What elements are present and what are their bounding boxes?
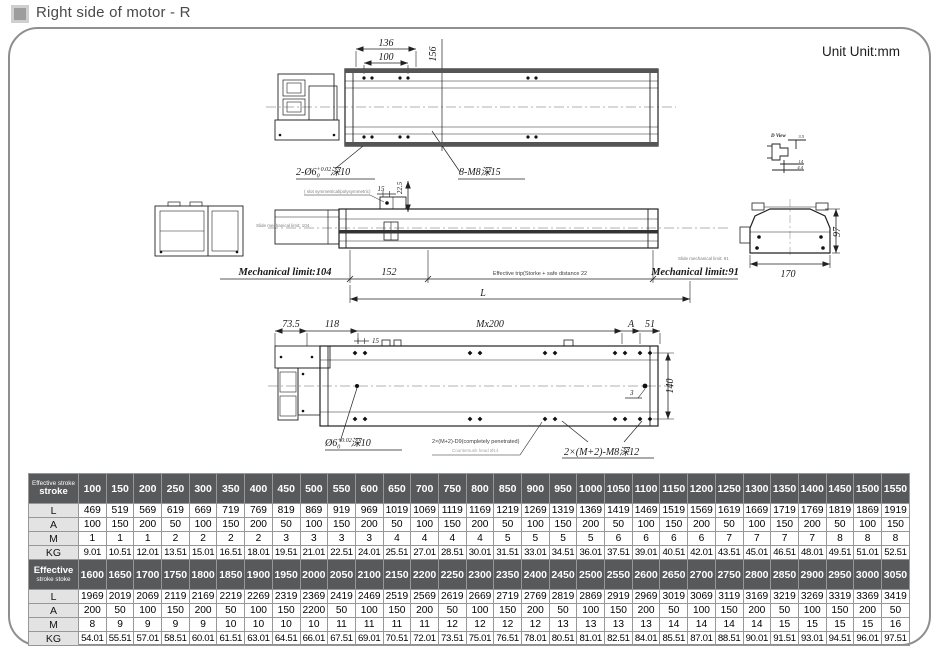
table-cell: 30.01 — [466, 546, 494, 560]
table-cell: 50 — [826, 518, 854, 532]
table-cell: 12 — [466, 618, 494, 632]
table-cell: 50 — [715, 518, 743, 532]
table-cell: 11 — [355, 618, 383, 632]
table-cell: 150 — [217, 518, 245, 532]
table-row-m: M111222233334444555566667777888 — [29, 532, 910, 546]
table-cell: 19.51 — [272, 546, 300, 560]
stroke-value-header: 2200 — [411, 560, 439, 590]
table-cell: 76.51 — [494, 632, 522, 646]
d-view-detail: D View 3.5 14 4.4 — [767, 134, 806, 173]
table-cell: 1869 — [854, 504, 882, 518]
table-cell: 85.51 — [660, 632, 688, 646]
table-cell: 100 — [466, 604, 494, 618]
mechanical-limit-right-label: Mechanical limit:91 — [650, 267, 739, 278]
table-cell: 78.01 — [522, 632, 550, 646]
stroke-value-header: 2100 — [355, 560, 383, 590]
table-cell: 150 — [660, 518, 688, 532]
table-cell: 1019 — [383, 504, 411, 518]
table-cell: 8 — [854, 532, 882, 546]
stroke-value-header: 1700 — [134, 560, 162, 590]
table-cell: 97.51 — [881, 632, 909, 646]
table-cell: 50 — [217, 604, 245, 618]
table-cell: 150 — [771, 518, 799, 532]
stroke-table-2: Effectivestroke stoke1600165017001750180… — [28, 559, 910, 646]
d-view-dim1: 3.5 — [798, 134, 804, 139]
dim-136-label: 136 — [379, 38, 394, 49]
table-cell: 40.51 — [660, 546, 688, 560]
stroke-value-header: 1250 — [715, 474, 743, 504]
table-cell: 100 — [798, 604, 826, 618]
table-cell: 1819 — [826, 504, 854, 518]
dim-15-offset-label: 15 — [372, 337, 380, 345]
table-cell: 3 — [328, 532, 356, 546]
table-cell: 6 — [660, 532, 688, 546]
table-cell: 93.01 — [798, 632, 826, 646]
stroke-value-header: 1600 — [79, 560, 107, 590]
table-cell: 64.51 — [272, 632, 300, 646]
table-cell: 2 — [162, 532, 190, 546]
dim-mx200-label: Mx200 — [475, 319, 504, 330]
table-cell: 3019 — [660, 590, 688, 604]
table-cell: 569 — [134, 504, 162, 518]
table-cell: 100 — [522, 518, 550, 532]
table-cell: 50 — [328, 604, 356, 618]
stroke-value-header: 2550 — [605, 560, 633, 590]
table-cell: 719 — [217, 504, 245, 518]
table-row-m: M899991010101011111111121212121313131314… — [29, 618, 910, 632]
table-cell: 869 — [300, 504, 328, 518]
table-cell: 13 — [632, 618, 660, 632]
stroke-value-header: 1800 — [189, 560, 217, 590]
through-hole-label: 2×(M+2)-D9(completely penetrated) — [432, 439, 520, 445]
table-cell: 5 — [577, 532, 605, 546]
table-cell: 2319 — [272, 590, 300, 604]
table-cell: 36.01 — [577, 546, 605, 560]
table-cell: 69.01 — [355, 632, 383, 646]
table-cell: 2619 — [438, 590, 466, 604]
table-cell: 75.01 — [466, 632, 494, 646]
table-cell: 100 — [355, 604, 383, 618]
table-cell: 2 — [217, 532, 245, 546]
stroke-value-header: 3000 — [854, 560, 882, 590]
table-cell: 4 — [383, 532, 411, 546]
stroke-value-header: 2300 — [466, 560, 494, 590]
table-cell: 150 — [605, 604, 633, 618]
stroke-value-header: 1200 — [688, 474, 716, 504]
table-cell: 50 — [106, 604, 134, 618]
stroke-value-header: 1750 — [162, 560, 190, 590]
table-cell: 1669 — [743, 504, 771, 518]
table-cell: 769 — [245, 504, 273, 518]
table-cell: 61.51 — [217, 632, 245, 646]
table-cell: 91.51 — [771, 632, 799, 646]
stroke-value-header: 500 — [300, 474, 328, 504]
row-label: A — [29, 604, 79, 618]
table-cell: 2219 — [217, 590, 245, 604]
table-cell: 150 — [272, 604, 300, 618]
table-cell: 1369 — [577, 504, 605, 518]
technical-drawing: 136 100 156 2-Ø6+0.020深10 8-M8深15 — [28, 36, 912, 468]
dim-73-5-label: 73.5 — [282, 319, 300, 330]
table-cell: 2869 — [577, 590, 605, 604]
table-cell: 24.01 — [355, 546, 383, 560]
stroke-value-header: 1900 — [245, 560, 273, 590]
table-cell: 82.51 — [605, 632, 633, 646]
table-cell: 2269 — [245, 590, 273, 604]
table-cell: 2569 — [411, 590, 439, 604]
table-cell: 94.51 — [826, 632, 854, 646]
table-cell: 3069 — [688, 590, 716, 604]
table-row-a: A200501001502005010015022005010015020050… — [29, 604, 910, 618]
table-cell: 1969 — [79, 590, 107, 604]
table-cell: 200 — [79, 604, 107, 618]
stroke-value-header: 350 — [217, 474, 245, 504]
table-cell: 200 — [245, 518, 273, 532]
table-cell: 819 — [272, 504, 300, 518]
table-cell: 14 — [688, 618, 716, 632]
top-view-drawing: 136 100 156 2-Ø6+0.020深10 8-M8深15 — [266, 38, 676, 180]
table-cell: 49.51 — [826, 546, 854, 560]
stroke-value-header: 400 — [245, 474, 273, 504]
tapped-hole-bottom-label: 2×(M+2)-M8深12 — [564, 446, 639, 458]
stroke-value-header: 450 — [272, 474, 300, 504]
table-cell: 1 — [106, 532, 134, 546]
table-cell: 3169 — [743, 590, 771, 604]
stroke-value-header: 700 — [411, 474, 439, 504]
dim-156-label: 156 — [428, 47, 439, 62]
table-cell: 100 — [300, 518, 328, 532]
table-cell: 50 — [383, 518, 411, 532]
stroke-value-header: 1850 — [217, 560, 245, 590]
table-cell: 87.01 — [688, 632, 716, 646]
table-cell: 200 — [411, 604, 439, 618]
table-cell: 2119 — [162, 590, 190, 604]
stroke-value-header: 2650 — [660, 560, 688, 590]
stroke-value-header: 2250 — [438, 560, 466, 590]
table-cell: 150 — [438, 518, 466, 532]
table-cell: 10 — [300, 618, 328, 632]
table-cell: 200 — [577, 518, 605, 532]
d-view-dim2: 14 — [799, 159, 804, 164]
symmetry-note: ( slot symmetrical/polysymmetric) — [304, 189, 371, 194]
table-cell: 15.01 — [189, 546, 217, 560]
stroke-value-header: 650 — [383, 474, 411, 504]
table-cell: 150 — [715, 604, 743, 618]
stroke-value-header: 2950 — [826, 560, 854, 590]
table-cell: 58.51 — [162, 632, 190, 646]
row-label: KG — [29, 632, 79, 646]
stroke-value-header: 150 — [106, 474, 134, 504]
slide-limit-right-note: Slide mechanical limit: 91 — [678, 256, 729, 261]
stroke-value-header: 2500 — [577, 560, 605, 590]
table-cell: 96.01 — [854, 632, 882, 646]
dim-100-label: 100 — [379, 52, 394, 63]
table-cell: 2719 — [494, 590, 522, 604]
stroke-value-header: 2850 — [771, 560, 799, 590]
table-cell: 1919 — [881, 504, 909, 518]
table-cell: 2669 — [466, 590, 494, 604]
table-cell: 31.51 — [494, 546, 522, 560]
table-cell: 5 — [549, 532, 577, 546]
table-cell: 39.01 — [632, 546, 660, 560]
table-cell: 919 — [328, 504, 356, 518]
table-cell: 1169 — [466, 504, 494, 518]
stroke-value-header: 1300 — [743, 474, 771, 504]
table-cell: 50 — [605, 518, 633, 532]
table-cell: 2519 — [383, 590, 411, 604]
stroke-value-header: 2750 — [715, 560, 743, 590]
table-cell: 6 — [632, 532, 660, 546]
table-cell: 2200 — [300, 604, 328, 618]
dim-140-label: 140 — [665, 379, 676, 394]
table-cell: 200 — [743, 604, 771, 618]
dowel-hole-label: 2-Ø6+0.020深10 — [296, 166, 350, 180]
table-cell: 6 — [688, 532, 716, 546]
table-cell: 100 — [688, 604, 716, 618]
table-cell: 50 — [660, 604, 688, 618]
table-cell: 63.01 — [245, 632, 273, 646]
table-cell: 1719 — [771, 504, 799, 518]
table-cell: 9 — [162, 618, 190, 632]
table-cell: 7 — [771, 532, 799, 546]
d-view-title: D View — [770, 134, 787, 139]
table-cell: 46.51 — [771, 546, 799, 560]
stroke-value-header: 1950 — [272, 560, 300, 590]
table-cell: 25.51 — [383, 546, 411, 560]
table-cell: 90.01 — [743, 632, 771, 646]
table-cell: 2169 — [189, 590, 217, 604]
table-cell: 5 — [522, 532, 550, 546]
stroke-value-header: 600 — [355, 474, 383, 504]
table-cell: 2 — [189, 532, 217, 546]
table-cell: 28.51 — [438, 546, 466, 560]
table-cell: 200 — [134, 518, 162, 532]
table-row-a: A100150200501001502005010015020050100150… — [29, 518, 910, 532]
table-row-l: L469519569619669719769819869919969101910… — [29, 504, 910, 518]
table-cell: 50 — [438, 604, 466, 618]
table-cell: 14 — [743, 618, 771, 632]
table-cell: 13.51 — [162, 546, 190, 560]
table-cell: 9 — [189, 618, 217, 632]
table-cell: 50 — [494, 518, 522, 532]
table-cell: 469 — [79, 504, 107, 518]
title-square-icon — [11, 5, 29, 23]
table-cell: 4 — [411, 532, 439, 546]
table-cell: 51.01 — [854, 546, 882, 560]
dim-22-5-label: 22.5 — [396, 181, 404, 194]
table-cell: 3319 — [826, 590, 854, 604]
stroke-value-header: 250 — [162, 474, 190, 504]
stroke-header-label: Effective strokestroke — [29, 474, 79, 504]
table-cell: 9 — [134, 618, 162, 632]
stroke-value-header: 1400 — [798, 474, 826, 504]
page-title: Right side of motor - R — [36, 4, 191, 21]
table-cell: 3119 — [715, 590, 743, 604]
table-cell: 88.51 — [715, 632, 743, 646]
table-cell: 150 — [881, 518, 909, 532]
stroke-value-header: 2700 — [688, 560, 716, 590]
dim-152-label: 152 — [382, 267, 397, 278]
table-cell: 200 — [355, 518, 383, 532]
table-cell: 80.51 — [549, 632, 577, 646]
table-cell: 2019 — [106, 590, 134, 604]
table-cell: 7 — [715, 532, 743, 546]
table-cell: 1119 — [438, 504, 466, 518]
stroke-value-header: 800 — [466, 474, 494, 504]
slide-limit-left-note: Slide mechanical limit: 104 — [256, 223, 310, 228]
table-cell: 200 — [189, 604, 217, 618]
table-cell: 10.51 — [106, 546, 134, 560]
table-cell: 37.51 — [605, 546, 633, 560]
table-cell: 3369 — [854, 590, 882, 604]
table-cell: 3 — [272, 532, 300, 546]
stroke-value-header: 3050 — [881, 560, 909, 590]
table-cell: 10 — [245, 618, 273, 632]
row-label: M — [29, 532, 79, 546]
table-row-l: L196920192069211921692219226923192369241… — [29, 590, 910, 604]
table-cell: 12 — [438, 618, 466, 632]
dim-97-label: 97 — [832, 226, 843, 237]
table-cell: 2 — [245, 532, 273, 546]
table-cell: 52.51 — [881, 546, 909, 560]
table-cell: 1069 — [411, 504, 439, 518]
stroke-value-header: 1350 — [771, 474, 799, 504]
tapped-hole-label: 8-M8深15 — [459, 166, 501, 178]
table-cell: 70.51 — [383, 632, 411, 646]
table-cell: 18.01 — [245, 546, 273, 560]
table-cell: 8 — [79, 618, 107, 632]
table-cell: 200 — [854, 604, 882, 618]
table-cell: 21.01 — [300, 546, 328, 560]
stroke-value-header: 2000 — [300, 560, 328, 590]
table-cell: 2969 — [632, 590, 660, 604]
table-cell: 150 — [162, 604, 190, 618]
table-cell: 619 — [162, 504, 190, 518]
table-cell: 73.51 — [438, 632, 466, 646]
table-cell: 1419 — [605, 504, 633, 518]
table-cell: 50 — [162, 518, 190, 532]
table-cell: 3 — [300, 532, 328, 546]
mechanical-limit-left-label: Mechanical limit:104 — [237, 267, 331, 278]
table-cell: 12 — [522, 618, 550, 632]
table-cell: 15 — [826, 618, 854, 632]
stroke-value-header: 100 — [79, 474, 107, 504]
stroke-value-header: 2900 — [798, 560, 826, 590]
table-cell: 54.01 — [79, 632, 107, 646]
table-row-kg: KG9.0110.5112.0113.5115.0116.5118.0119.5… — [29, 546, 910, 560]
table-cell: 1619 — [715, 504, 743, 518]
table-cell: 15 — [771, 618, 799, 632]
table-cell: 43.51 — [715, 546, 743, 560]
table-cell: 100 — [854, 518, 882, 532]
dim-3-label: 3 — [629, 389, 634, 397]
table-cell: 2369 — [300, 590, 328, 604]
table-cell: 33.01 — [522, 546, 550, 560]
stroke-value-header: 1100 — [632, 474, 660, 504]
table-cell: 200 — [632, 604, 660, 618]
table-cell: 13 — [577, 618, 605, 632]
stroke-value-header: 750 — [438, 474, 466, 504]
table-cell: 60.01 — [189, 632, 217, 646]
table-cell: 42.01 — [688, 546, 716, 560]
stroke-value-header: 2150 — [383, 560, 411, 590]
table-cell: 150 — [826, 604, 854, 618]
row-label: L — [29, 504, 79, 518]
table-cell: 8 — [826, 532, 854, 546]
table-cell: 11 — [328, 618, 356, 632]
table-cell: 200 — [798, 518, 826, 532]
table-cell: 81.01 — [577, 632, 605, 646]
table-cell: 15 — [798, 618, 826, 632]
table-cell: 15 — [854, 618, 882, 632]
table-cell: 14 — [715, 618, 743, 632]
dowel-hole-bottom-label: Ø6+0.020深10 — [324, 437, 371, 451]
table-cell: 72.01 — [411, 632, 439, 646]
table-cell: 150 — [549, 518, 577, 532]
table-cell: 100 — [743, 518, 771, 532]
table-cell: 14 — [660, 618, 688, 632]
table-cell: 6 — [605, 532, 633, 546]
table-cell: 16.51 — [217, 546, 245, 560]
table-cell: 4 — [466, 532, 494, 546]
table-cell: 5 — [494, 532, 522, 546]
table-cell: 150 — [328, 518, 356, 532]
cross-section-drawing: 97 170 — [740, 199, 843, 280]
stroke-header-row: Effectivestroke stoke1600165017001750180… — [29, 560, 910, 590]
stroke-value-header: 2600 — [632, 560, 660, 590]
table-cell: 2919 — [605, 590, 633, 604]
effective-trip-label: Effective trip(Storke + safe distance 22 — [493, 271, 587, 277]
table-cell: 66.01 — [300, 632, 328, 646]
table-cell: 1519 — [660, 504, 688, 518]
table-cell: 50 — [272, 518, 300, 532]
table-cell: 13 — [605, 618, 633, 632]
d-view-dim3: 4.4 — [797, 165, 803, 170]
bottom-view-drawing: 73.5 118 Mx200 A 51 15 140 3 Ø6+0.020深10… — [268, 319, 676, 458]
table-cell: 11 — [383, 618, 411, 632]
table-cell: 1769 — [798, 504, 826, 518]
datasheet-page: Right side of motor - R Unit Unit:mm — [0, 0, 940, 651]
table-cell: 2819 — [549, 590, 577, 604]
table-cell: 22.51 — [328, 546, 356, 560]
table-cell: 100 — [189, 518, 217, 532]
table-cell: 100 — [577, 604, 605, 618]
table-cell: 9.01 — [79, 546, 107, 560]
stroke-value-header: 950 — [549, 474, 577, 504]
table-cell: 3269 — [798, 590, 826, 604]
table-cell: 1469 — [632, 504, 660, 518]
stroke-value-header: 200 — [134, 474, 162, 504]
dim-170-label: 170 — [781, 269, 796, 280]
table-cell: 1269 — [522, 504, 550, 518]
table-cell: 2769 — [522, 590, 550, 604]
table-cell: 13 — [549, 618, 577, 632]
stroke-value-header: 2050 — [328, 560, 356, 590]
stroke-value-header: 550 — [328, 474, 356, 504]
stroke-table-1: Effective strokestroke100150200250300350… — [28, 473, 910, 560]
table-cell: 100 — [134, 604, 162, 618]
dim-A-label: A — [627, 319, 635, 330]
stroke-value-header: 850 — [494, 474, 522, 504]
table-cell: 150 — [106, 518, 134, 532]
table-cell: 3219 — [771, 590, 799, 604]
table-cell: 100 — [79, 518, 107, 532]
table-cell: 150 — [494, 604, 522, 618]
stroke-value-header: 1050 — [605, 474, 633, 504]
table-cell: 45.01 — [743, 546, 771, 560]
stroke-value-header: 1450 — [826, 474, 854, 504]
table-cell: 16 — [881, 618, 909, 632]
